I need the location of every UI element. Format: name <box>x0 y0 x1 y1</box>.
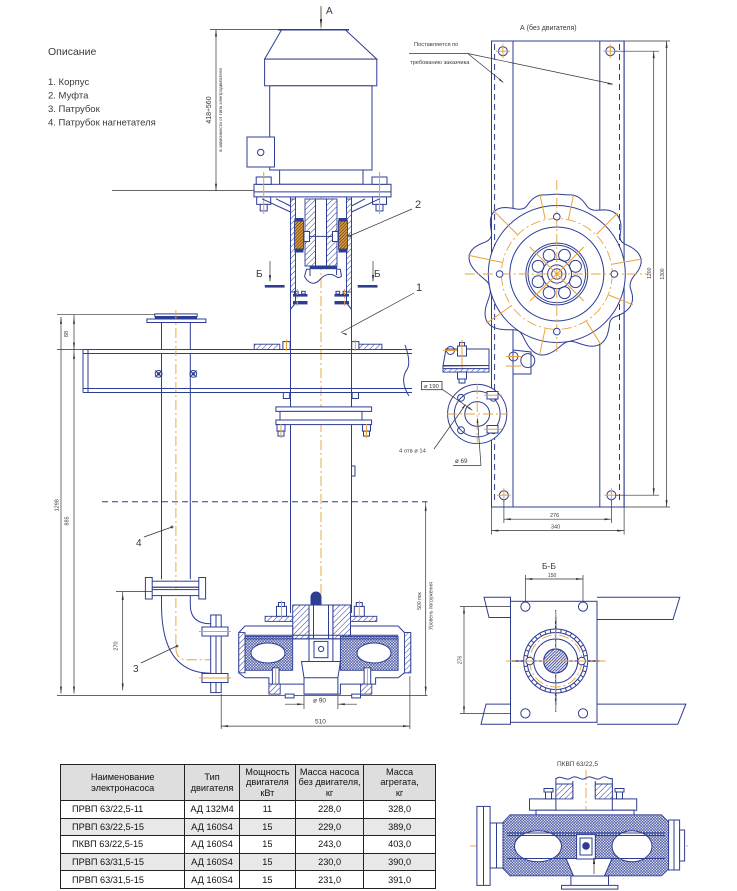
svg-text:ø 69: ø 69 <box>455 458 468 465</box>
svg-text:3. Патрубок: 3. Патрубок <box>48 104 101 115</box>
svg-text:1300: 1300 <box>660 268 666 279</box>
svg-text:4: 4 <box>136 538 142 549</box>
svg-text:2: 2 <box>415 199 421 211</box>
svg-text:Уровень погружения: Уровень погружения <box>429 582 435 630</box>
svg-text:Поставляется по: Поставляется по <box>414 42 458 48</box>
svg-text:885: 885 <box>65 516 71 525</box>
svg-text:276: 276 <box>458 656 464 665</box>
svg-text:88: 88 <box>64 331 70 337</box>
svg-text:276: 276 <box>550 513 559 519</box>
svg-text:Б-Б: Б-Б <box>542 561 556 571</box>
svg-text:270: 270 <box>114 641 120 650</box>
svg-text:1: 1 <box>416 282 422 294</box>
svg-text:2. Муфта: 2. Муфта <box>48 91 89 102</box>
svg-text:150: 150 <box>548 573 557 579</box>
svg-text:418÷560: 418÷560 <box>206 96 213 123</box>
svg-text:ø 190: ø 190 <box>424 384 439 390</box>
svg-text:Описание: Описание <box>48 46 96 58</box>
svg-text:А: А <box>326 6 333 17</box>
svg-text:1298: 1298 <box>55 499 61 511</box>
svg-text:ø 90: ø 90 <box>313 698 326 705</box>
svg-text:ПКВП 63/22,5: ПКВП 63/22,5 <box>557 761 598 768</box>
svg-text:Б: Б <box>374 269 381 280</box>
svg-text:1200: 1200 <box>647 267 653 278</box>
svg-text:1. Корпус: 1. Корпус <box>48 77 89 88</box>
svg-text:500 пок: 500 пок <box>417 591 423 609</box>
svg-text:340: 340 <box>551 525 560 531</box>
svg-text:510: 510 <box>315 719 326 726</box>
svg-text:4. Патрубок нагнетателя: 4. Патрубок нагнетателя <box>48 118 156 129</box>
svg-text:требованию заказчика: требованию заказчика <box>410 60 470 66</box>
svg-text:в зависимости от типа электрод: в зависимости от типа электродвигателя <box>218 68 223 152</box>
svg-text:3: 3 <box>133 664 139 675</box>
svg-text:А (без двигателя): А (без двигателя) <box>520 24 577 32</box>
svg-text:Б: Б <box>256 269 263 280</box>
svg-text:4 отв ø 14: 4 отв ø 14 <box>399 449 427 455</box>
